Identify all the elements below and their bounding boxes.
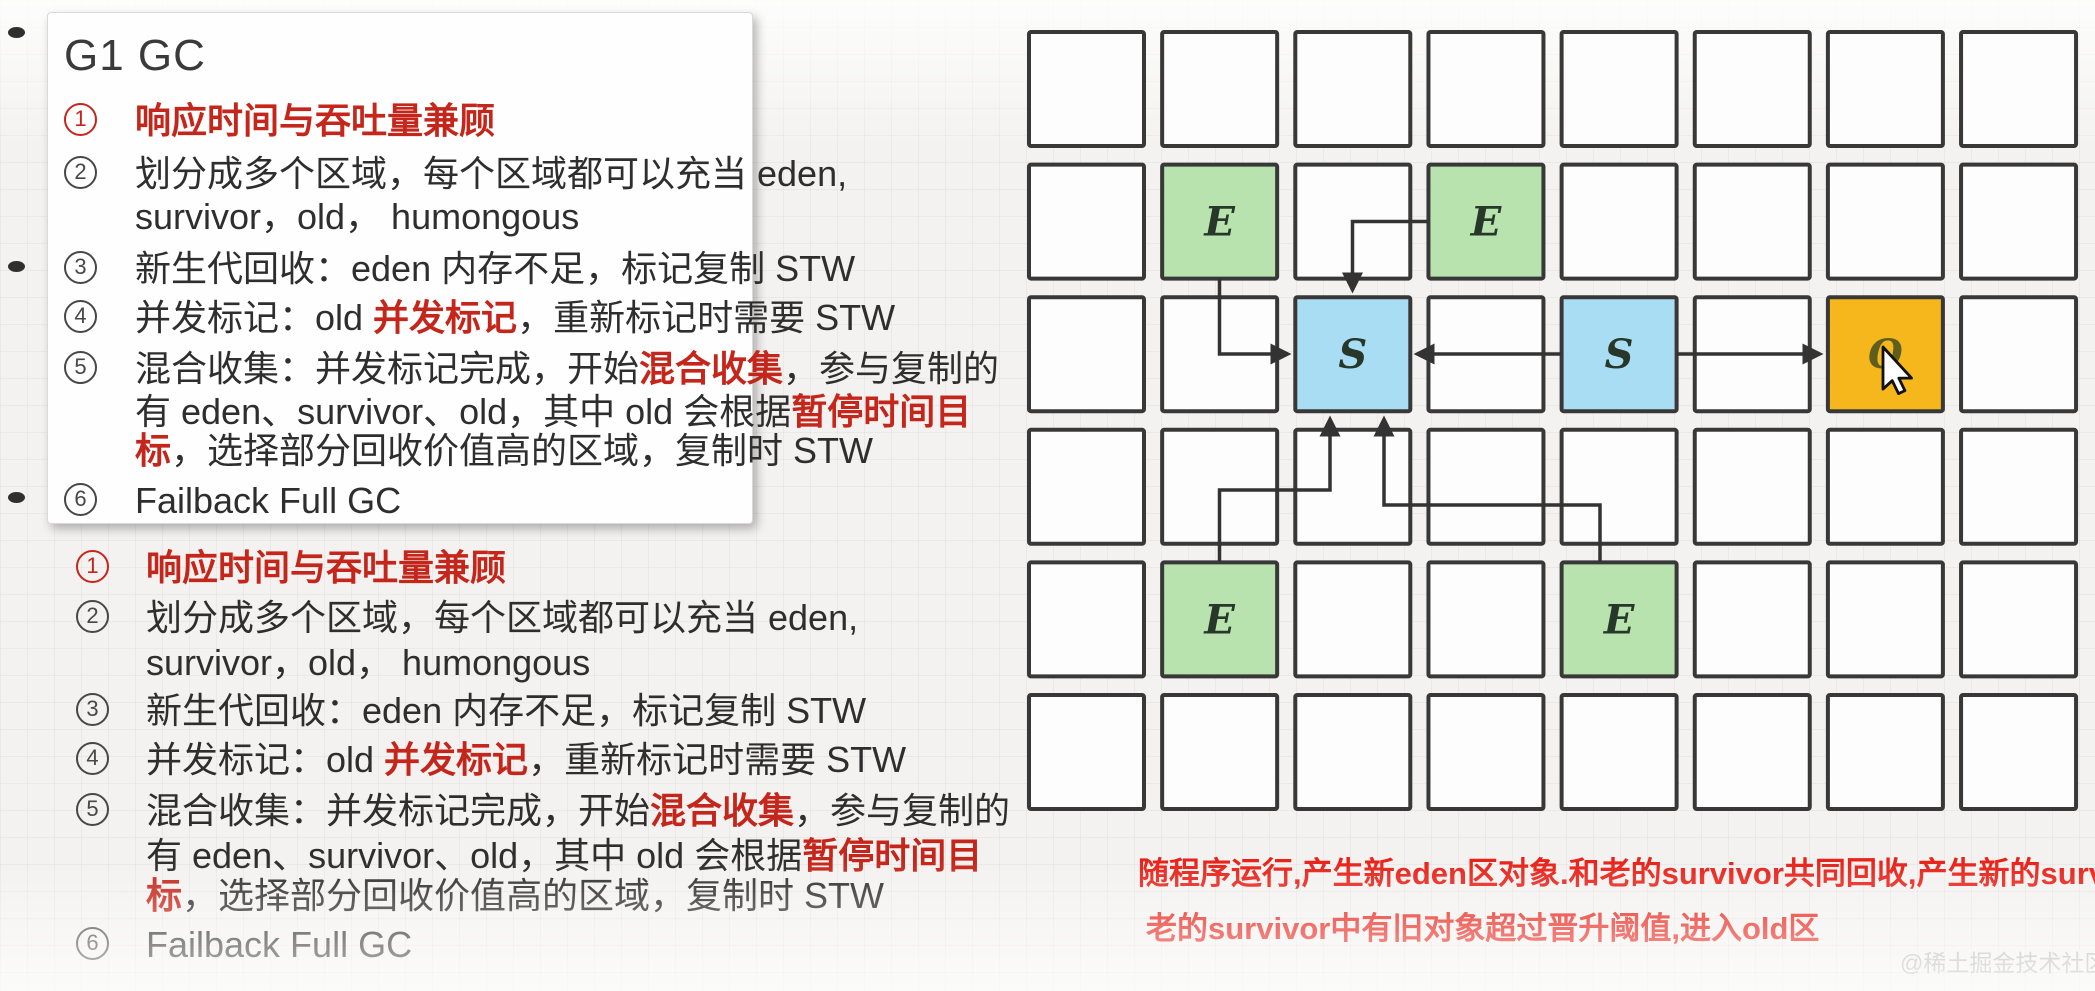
empty-region-cell (1828, 32, 1943, 146)
region-cell-letter: E (1470, 199, 1502, 246)
region-cells: EESSOEE (1029, 32, 2076, 809)
empty-region-cell (1428, 562, 1543, 676)
region-cell-letter: E (1203, 596, 1235, 643)
empty-region-cell (1029, 562, 1144, 676)
region-cell-letter: E (1203, 199, 1235, 246)
empty-region-cell (1295, 562, 1410, 676)
empty-region-cell (1562, 695, 1677, 809)
region-cell-letter: S (1605, 331, 1634, 378)
empty-region-cell (1828, 430, 1943, 544)
empty-region-cell (1695, 165, 1810, 279)
empty-region-cell (1162, 695, 1277, 809)
empty-region-cell (1162, 32, 1277, 146)
annotation-line-1: 随程序运行,产生新eden区对象.和老的survivor共同回收,产生新的sur… (1138, 848, 2095, 893)
empty-region-cell (1029, 297, 1144, 411)
region-cell-letter: S (1338, 331, 1367, 378)
empty-region-cell (1961, 32, 2076, 146)
empty-region-cell (1695, 695, 1810, 809)
empty-region-cell (1295, 695, 1410, 809)
region-grid-diagram: EESSOEE (0, 0, 2095, 991)
empty-region-cell (1562, 165, 1677, 279)
empty-region-cell (1961, 430, 2076, 544)
empty-region-cell (1428, 430, 1543, 544)
empty-region-cell (1828, 562, 1943, 676)
empty-region-cell (1029, 32, 1144, 146)
empty-region-cell (1695, 562, 1810, 676)
watermark: @稀土掘金技术社区 (1900, 944, 2095, 978)
empty-region-cell (1029, 165, 1144, 279)
page: G1 GC 1响应时间与吞吐量兼顾2划分成多个区域，每个区域都可以充当 eden… (0, 0, 2095, 991)
annotation-line-2: 老的survivor中有旧对象超过晋升阈值,进入old区 (1146, 903, 1819, 948)
empty-region-cell (1562, 430, 1677, 544)
empty-region-cell (1961, 165, 2076, 279)
empty-region-cell (1961, 297, 2076, 411)
empty-region-cell (1695, 430, 1810, 544)
empty-region-cell (1828, 695, 1943, 809)
empty-region-cell (1295, 430, 1410, 544)
empty-region-cell (1961, 562, 2076, 676)
empty-region-cell (1295, 32, 1410, 146)
empty-region-cell (1428, 32, 1543, 146)
region-cell-letter: E (1603, 596, 1635, 643)
empty-region-cell (1828, 165, 1943, 279)
empty-region-cell (1029, 695, 1144, 809)
empty-region-cell (1562, 32, 1677, 146)
empty-region-cell (1961, 695, 2076, 809)
empty-region-cell (1029, 430, 1144, 544)
empty-region-cell (1428, 695, 1543, 809)
empty-region-cell (1695, 32, 1810, 146)
